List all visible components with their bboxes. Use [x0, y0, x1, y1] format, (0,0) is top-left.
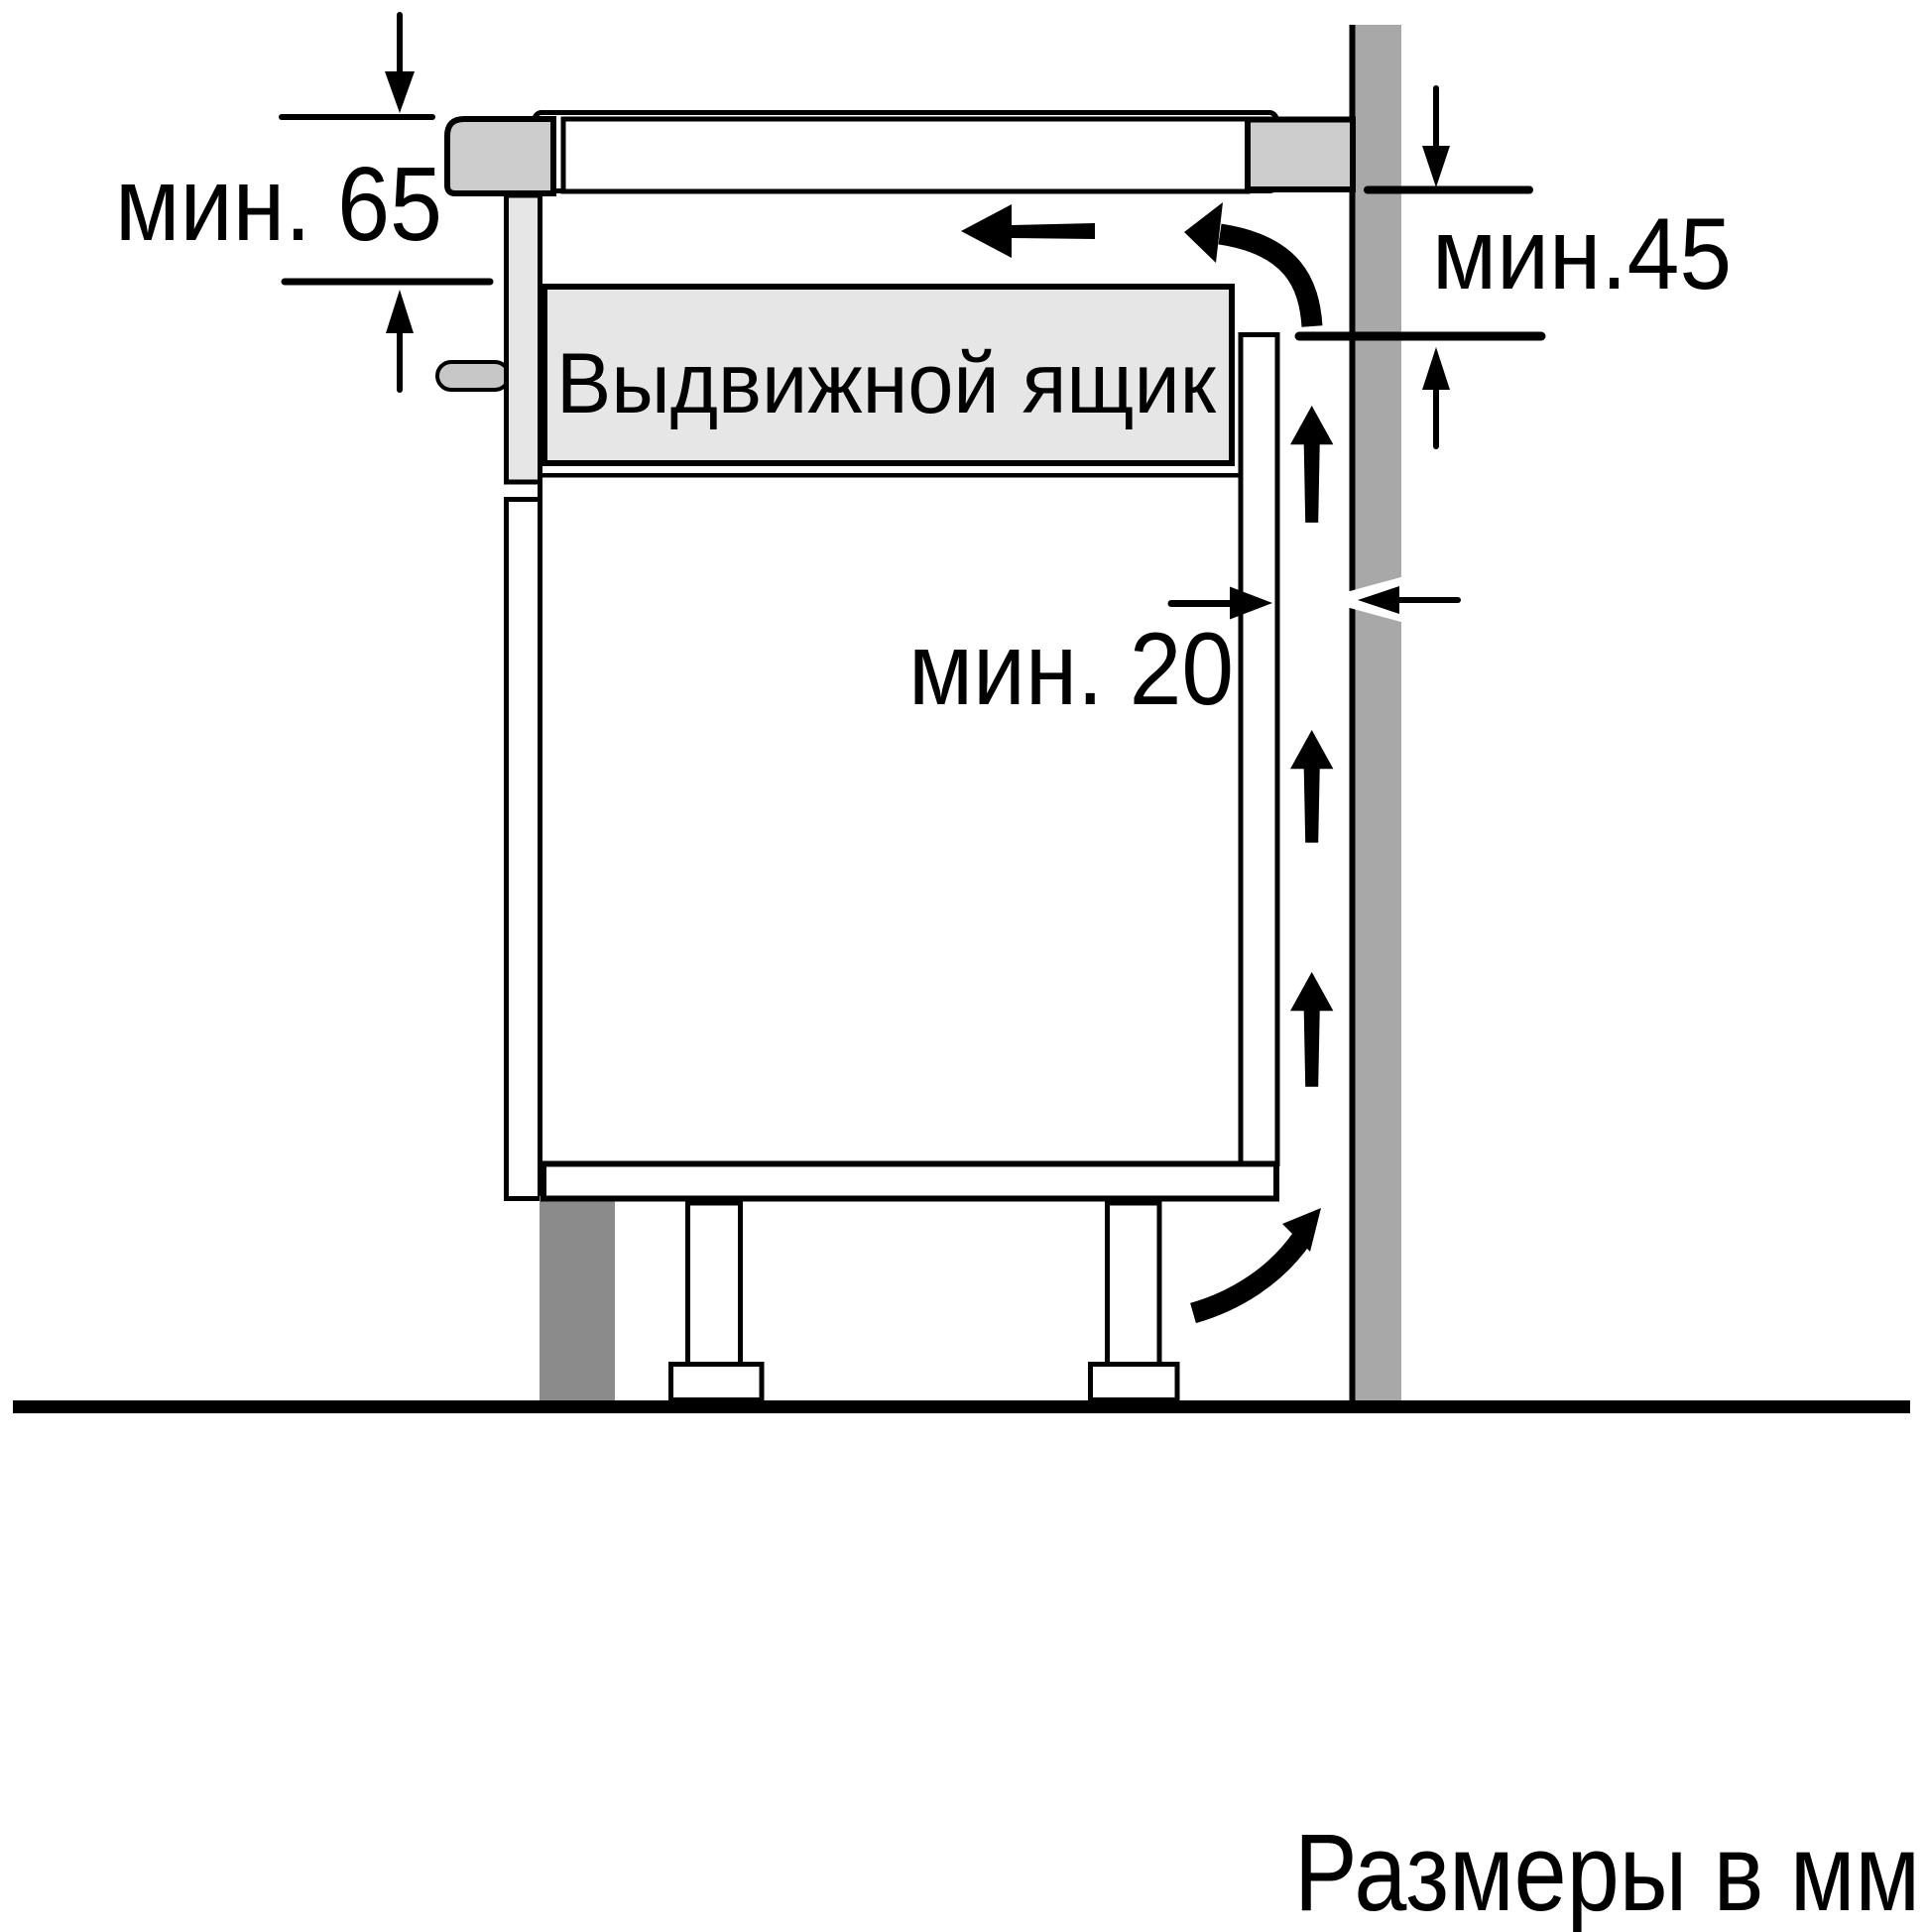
svg-text:Выдвижной ящик: Выдвижной ящик — [556, 336, 1217, 431]
svg-text:Размеры в мм: Размеры в мм — [1294, 1812, 1920, 1932]
svg-text:мин.45: мин.45 — [1432, 197, 1732, 310]
svg-text:мин. 20: мин. 20 — [908, 612, 1234, 727]
svg-text:мин. 65: мин. 65 — [115, 146, 442, 263]
